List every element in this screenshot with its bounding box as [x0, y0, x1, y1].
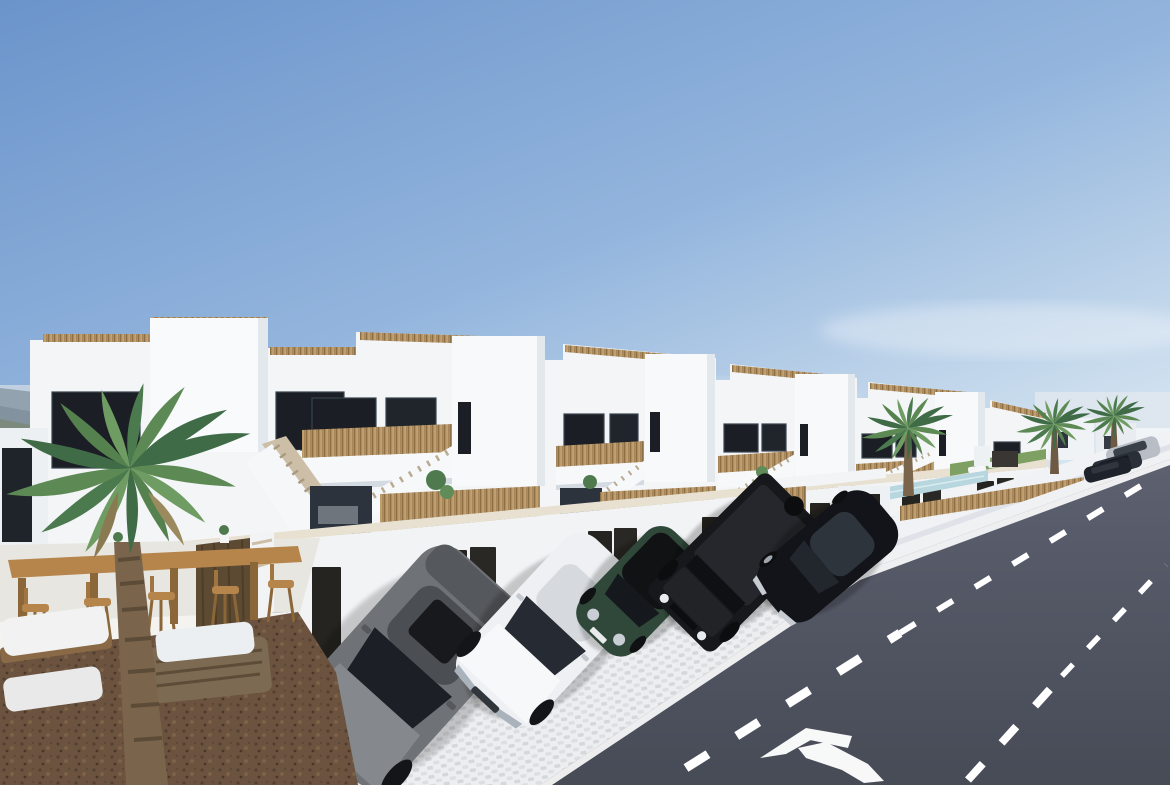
- window: [724, 424, 758, 452]
- tower-front: [150, 318, 268, 452]
- tower-side-shade: [707, 354, 715, 482]
- interior-furniture: [318, 506, 358, 524]
- roof-railing-reed: [270, 347, 356, 355]
- window: [610, 414, 638, 446]
- window: [762, 424, 786, 451]
- render-canvas: [0, 0, 1170, 785]
- tower-side-shade: [848, 374, 855, 480]
- scene-render: [0, 0, 1170, 785]
- pool-outbuilding: [974, 446, 990, 466]
- patio-plant: [583, 475, 597, 489]
- tower-window: [458, 402, 471, 454]
- roof-railing-reed: [43, 334, 150, 342]
- balcony-reed-rail: [302, 424, 452, 458]
- patio-plant: [440, 485, 454, 499]
- garden-feature-wall: [992, 451, 1018, 467]
- tower-side-shade: [258, 318, 268, 452]
- window: [564, 414, 604, 448]
- table-plant: [219, 525, 229, 535]
- bar-table-leg: [250, 562, 258, 620]
- tower-window: [650, 412, 660, 452]
- table-plant: [113, 532, 123, 542]
- tower-side-shade: [537, 336, 545, 486]
- tower-window: [800, 424, 808, 456]
